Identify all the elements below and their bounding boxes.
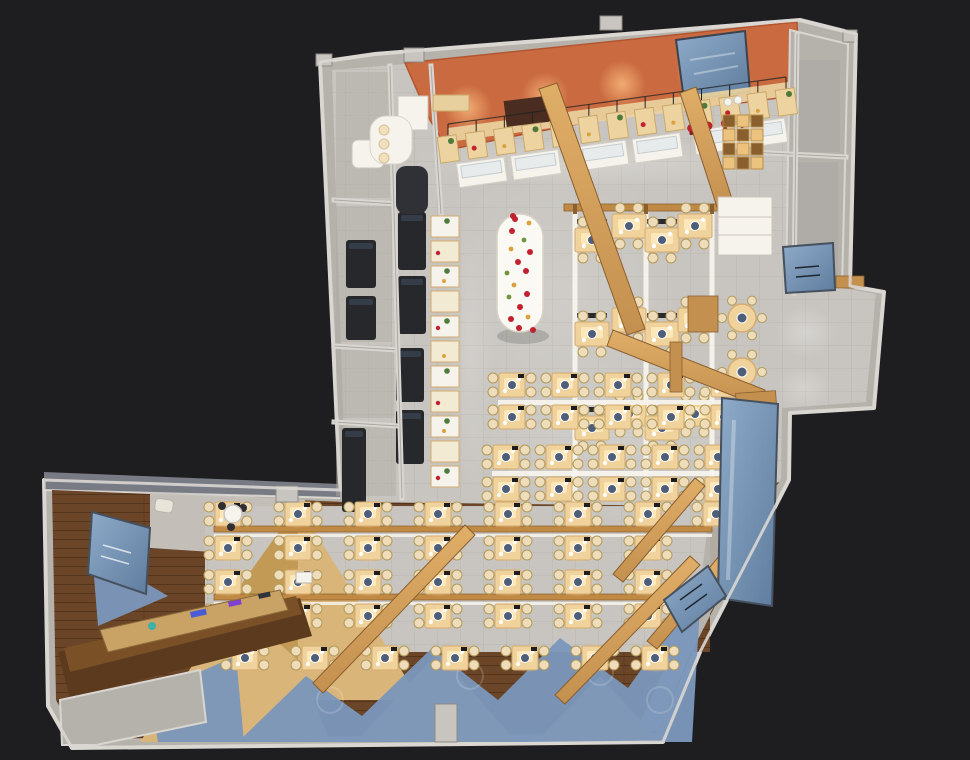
chair [204,550,214,560]
menu-art-amber [502,144,506,148]
place-plate [497,493,501,497]
dark-chair [227,523,235,531]
place-plate [603,493,607,497]
place-plate [656,461,660,465]
shared-plate [644,578,653,587]
plant-pot [448,138,454,144]
room-floor [796,60,840,152]
chair [484,516,494,526]
place-plate [569,620,573,624]
food-item [527,221,532,226]
place-plate [550,461,554,465]
place-plate [446,662,450,666]
chair [526,419,536,429]
menu-stand [304,605,310,609]
chair [596,311,606,321]
plant-pot [444,368,450,374]
chair [382,584,392,594]
menu-board [578,115,600,143]
storage-cubby [751,115,763,127]
menu-stand [374,537,380,541]
menu-stand [584,503,590,507]
chair [588,477,598,487]
shared-plate [574,612,583,621]
chair [647,405,657,415]
chair [666,217,676,227]
chair [484,618,494,628]
storage-cubby [751,157,763,169]
chair [274,516,284,526]
place-plate [609,421,613,425]
chair [274,536,284,546]
place-plate [662,421,666,425]
menu-stand [518,406,524,410]
shared-plate [644,510,653,519]
counter-plate [379,153,389,163]
chair [554,550,564,560]
place-plate [429,518,433,522]
chair [344,570,354,580]
menu-stand [391,647,397,651]
shared-plate [614,413,623,422]
menu-stand [514,503,520,507]
food-item [510,213,516,219]
shared-plate [364,578,373,587]
chair [694,445,704,455]
shared-plate [364,510,373,519]
place-plate [503,421,507,425]
chair [641,459,651,469]
chair [573,477,583,487]
chair [631,646,641,656]
chair [541,405,551,415]
place-plate [289,518,293,522]
chair [312,550,322,560]
shared-plate [504,578,513,587]
menu-stand [512,478,518,482]
plant-pot [444,218,450,224]
chair [554,618,564,628]
menu-stand [671,478,677,482]
chair [312,516,322,526]
menu-stand [514,537,520,541]
chair [648,253,658,263]
food-item [507,295,512,300]
food-display-red [436,251,440,255]
menu-stand [661,647,667,651]
chair [488,387,498,397]
chair [700,387,710,397]
chair [685,419,695,429]
dish-stack [734,96,742,104]
chair [728,296,737,305]
food-item [509,228,515,234]
chair [452,618,462,628]
chair [204,502,214,512]
chair [632,373,642,383]
menu-stand [444,503,450,507]
chair [588,459,598,469]
food-display-amber [442,354,446,358]
menu-art-red [472,146,477,151]
chair [482,491,492,501]
chair [641,445,651,455]
place-plate [359,586,363,590]
light-pool [776,306,836,358]
light-rail [498,400,744,405]
chair [679,445,689,455]
menu-stand [565,478,571,482]
shared-plate [588,330,597,339]
wood-ledge [688,296,718,332]
chair [685,387,695,397]
chair [414,536,424,546]
equipment-top [345,431,363,437]
chair [579,419,589,429]
chair [699,333,709,343]
place-plate [219,518,223,522]
place-plate [668,232,672,236]
chair [520,445,530,455]
chair [452,604,462,614]
chair [700,419,710,429]
menu-stand [374,605,380,609]
chair [484,570,494,580]
place-plate [429,552,433,556]
chair [541,387,551,397]
storage-cubby [751,143,763,155]
counter-item-teal [148,622,156,630]
place-plate [499,586,503,590]
food-item [522,238,527,243]
plant-pot [786,91,792,97]
food-item [517,304,523,310]
pillar [435,704,457,742]
place-plate [499,552,503,556]
equipment-top [349,243,373,249]
chair [382,502,392,512]
pillar [600,16,622,30]
chair [579,373,589,383]
storage-cubby [723,143,735,155]
menu-stand [624,374,630,378]
chair [571,660,581,670]
food-display-amber [442,279,446,283]
chair [520,477,530,487]
chair [526,373,536,383]
chair [624,536,634,546]
menu-stand [618,478,624,482]
shared-plate [224,544,233,553]
chair [431,660,441,670]
chair [615,239,625,249]
shared-plate [667,413,676,422]
place-plate [569,552,573,556]
equipment-top [401,215,423,221]
chair [535,459,545,469]
place-plate [652,432,656,436]
shared-plate [574,544,583,553]
shared-plate [434,612,443,621]
storage-cubby [737,143,749,155]
oval-table-top [497,214,543,332]
equipment-top [349,299,373,305]
place-plate [359,518,363,522]
menu-board [662,103,684,131]
shared-plate [504,612,513,621]
menu-stand [671,446,677,450]
chair [632,419,642,429]
chair [594,419,604,429]
chair [648,311,658,321]
chair [648,217,658,227]
chair [522,502,532,512]
place-plate [289,552,293,556]
chair [579,405,589,415]
chair [414,502,424,512]
chair [452,502,462,512]
chair [204,536,214,546]
food-item [509,247,514,252]
chair [647,373,657,383]
place-plate [619,230,623,234]
chair [592,584,602,594]
shared-plate [614,381,623,390]
armchair [154,498,174,513]
chair [578,253,588,263]
menu-stand [444,537,450,541]
chair [526,387,536,397]
chair [520,459,530,469]
chair [344,502,354,512]
storage-cubby [751,129,763,141]
food-item [526,315,531,320]
food-item [515,259,521,265]
food-display-red [436,326,440,330]
shared-plate [658,330,667,339]
chair [488,405,498,415]
chair [694,459,704,469]
shared-plate [364,544,373,553]
place-plate [639,586,643,590]
chair [541,419,551,429]
shared-plate [241,654,250,663]
chair [633,203,643,213]
shared-plate [311,654,320,663]
menu-stand [304,503,310,507]
chair [554,584,564,594]
rail-post [710,204,714,214]
menu-stand [571,374,577,378]
menu-stand [304,537,310,541]
chair [242,536,252,546]
menu-stand [444,605,450,609]
chair [274,550,284,560]
chair [592,502,602,512]
chair [632,405,642,415]
chair [666,311,676,321]
menu-stand [234,537,240,541]
place-plate [635,218,639,222]
chair [592,618,602,628]
chair [312,536,322,546]
chair [666,253,676,263]
chair [578,347,588,357]
shared-plate [574,510,583,519]
chair [641,477,651,487]
chair [588,445,598,455]
chair [522,604,532,614]
chair [469,660,479,670]
rail-post [573,204,577,214]
chair [662,550,672,560]
blue-door [783,243,835,293]
shared-plate [502,453,511,462]
service-stand [431,291,459,312]
chair [431,646,441,656]
chair [679,459,689,469]
chair [520,491,530,501]
shared-plate [502,485,511,494]
shared-plate [555,453,564,462]
chair [526,405,536,415]
food-display-red [436,476,440,480]
food-display-red [436,401,440,405]
chair [382,516,392,526]
entry-round-table [224,505,242,523]
chair [748,331,757,340]
rail-post [644,204,648,214]
chair [488,373,498,383]
chair [579,387,589,397]
menu-board [522,123,544,151]
kitchen-equipment [342,428,366,512]
chair [204,584,214,594]
chair [626,445,636,455]
chair [414,550,424,560]
chair [259,660,269,670]
place-plate [709,493,713,497]
plant-pot [444,418,450,424]
chair [484,550,494,560]
place-plate [306,662,310,666]
place-plate [359,620,363,624]
menu-stand [531,647,537,651]
chair [522,584,532,594]
chair [329,646,339,656]
chair [344,516,354,526]
menu-stand [461,647,467,651]
place-plate [646,662,650,666]
chair [484,604,494,614]
chair [399,660,409,670]
chair [382,550,392,560]
shared-plate [555,485,564,494]
storage-cubby [723,129,735,141]
chair [242,550,252,560]
chair [344,584,354,594]
chair [484,584,494,594]
chair [681,239,691,249]
shared-plate [451,654,460,663]
shared-plate [504,510,513,519]
menu-board [606,111,628,139]
chair [291,646,301,656]
chair [758,368,767,377]
menu-stand [571,406,577,410]
floorplan-3d-render [0,0,970,760]
chair [571,646,581,656]
menu-stand [624,406,630,410]
shared-plate [508,381,517,390]
chair [554,570,564,580]
chair [482,459,492,469]
canopy-downlight [598,60,646,108]
chair [535,445,545,455]
chair [624,516,634,526]
place-plate [556,389,560,393]
chair [748,350,757,359]
plant-pot [444,468,450,474]
chair [758,314,767,323]
chair [242,570,252,580]
chair [718,314,727,323]
shared-plate [434,510,443,519]
menu-board [465,131,487,159]
menu-art-amber [671,121,675,125]
chair [626,477,636,487]
chair [501,660,511,670]
shared-plate [661,485,670,494]
chair [361,660,371,670]
menu-stand [654,571,660,575]
chair [535,491,545,501]
shared-plate [737,313,747,323]
shared-plate [294,510,303,519]
chair [344,550,354,560]
menu-stand [654,503,660,507]
chair [312,604,322,614]
chair [541,373,551,383]
chair [626,459,636,469]
food-item [530,327,536,333]
menu-stand [321,647,327,651]
menu-stand [374,503,380,507]
chair [588,491,598,501]
wood-ledge [670,342,682,392]
chair [592,570,602,580]
shared-plate [364,612,373,621]
chair [204,570,214,580]
storage-cubby [737,115,749,127]
chair [554,502,564,512]
food-item [508,316,514,322]
chair [522,550,532,560]
food-item [524,291,530,297]
chair [312,570,322,580]
chair [291,660,301,670]
shared-plate [561,413,570,422]
menu-stand [584,605,590,609]
place-plate [668,326,672,330]
place-plate [619,324,623,328]
menu-art-red [641,122,646,127]
shared-plate [651,654,660,663]
menu-board [437,135,459,163]
equipment-top [401,279,423,285]
chair [274,502,284,512]
chair [482,445,492,455]
